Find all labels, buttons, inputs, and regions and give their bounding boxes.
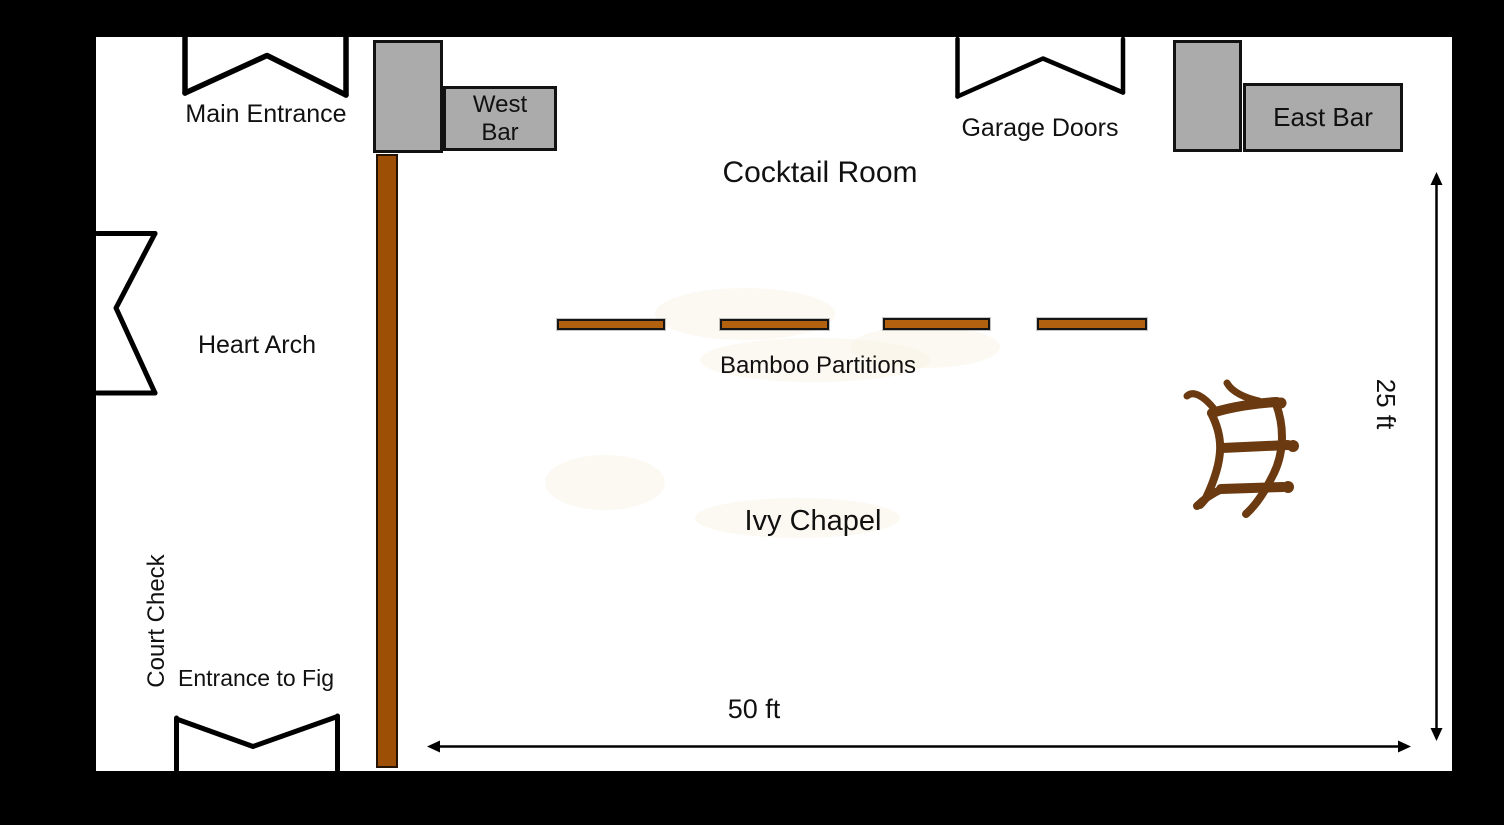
west-bar-label: West Bar <box>473 91 527 147</box>
east-bar: East Bar <box>1243 83 1403 152</box>
partition-wall <box>376 154 398 768</box>
height-dimension-label: 25 ft <box>1373 354 1401 454</box>
bamboo-partition-1 <box>557 319 665 330</box>
bamboo-partition-4 <box>1037 318 1147 330</box>
east-bar-label: East Bar <box>1273 102 1373 133</box>
main-entrance-label: Main Entrance <box>166 100 366 129</box>
heart-arch-label: Heart Arch <box>157 331 357 360</box>
west-bar-back-block <box>373 40 443 153</box>
ivy-chapel-label: Ivy Chapel <box>703 505 923 538</box>
width-dimension-label: 50 ft <box>654 694 854 725</box>
bamboo-partition-2 <box>720 319 829 330</box>
garage-doors-label: Garage Doors <box>940 114 1140 143</box>
floor-plan: West Bar East Bar <box>0 0 1504 825</box>
east-bar-back-block <box>1173 40 1242 152</box>
bamboo-partition-3 <box>883 318 990 330</box>
bamboo-partitions-label: Bamboo Partitions <box>703 352 933 380</box>
whiteout-smudge <box>545 455 665 510</box>
cocktail-room-label: Cocktail Room <box>710 156 930 190</box>
entrance-to-fig-label: Entrance to Fig <box>156 665 356 692</box>
west-bar: West Bar <box>443 86 557 151</box>
whiteout-smudge <box>655 288 835 340</box>
